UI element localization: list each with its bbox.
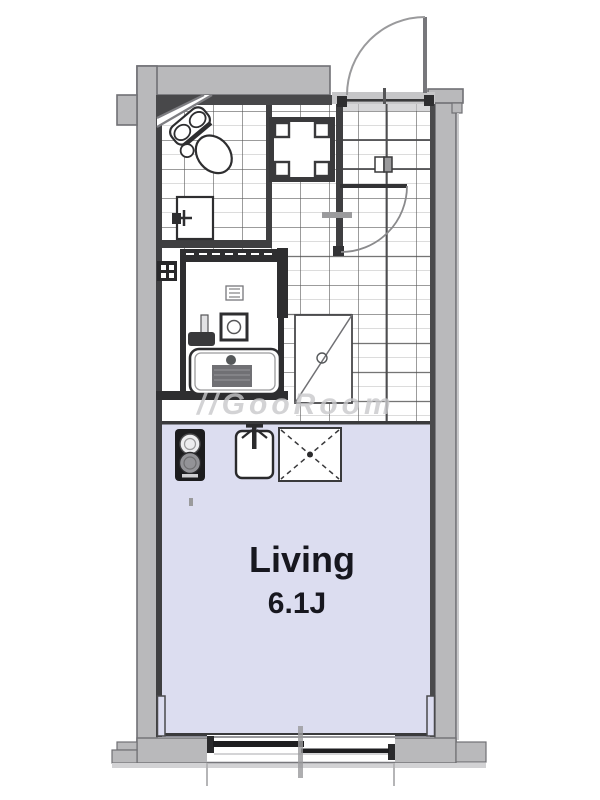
- svg-text:Living: Living: [249, 539, 355, 580]
- svg-text:6.1J: 6.1J: [268, 587, 326, 620]
- svg-text://GooRoom: //GooRoom: [195, 388, 395, 421]
